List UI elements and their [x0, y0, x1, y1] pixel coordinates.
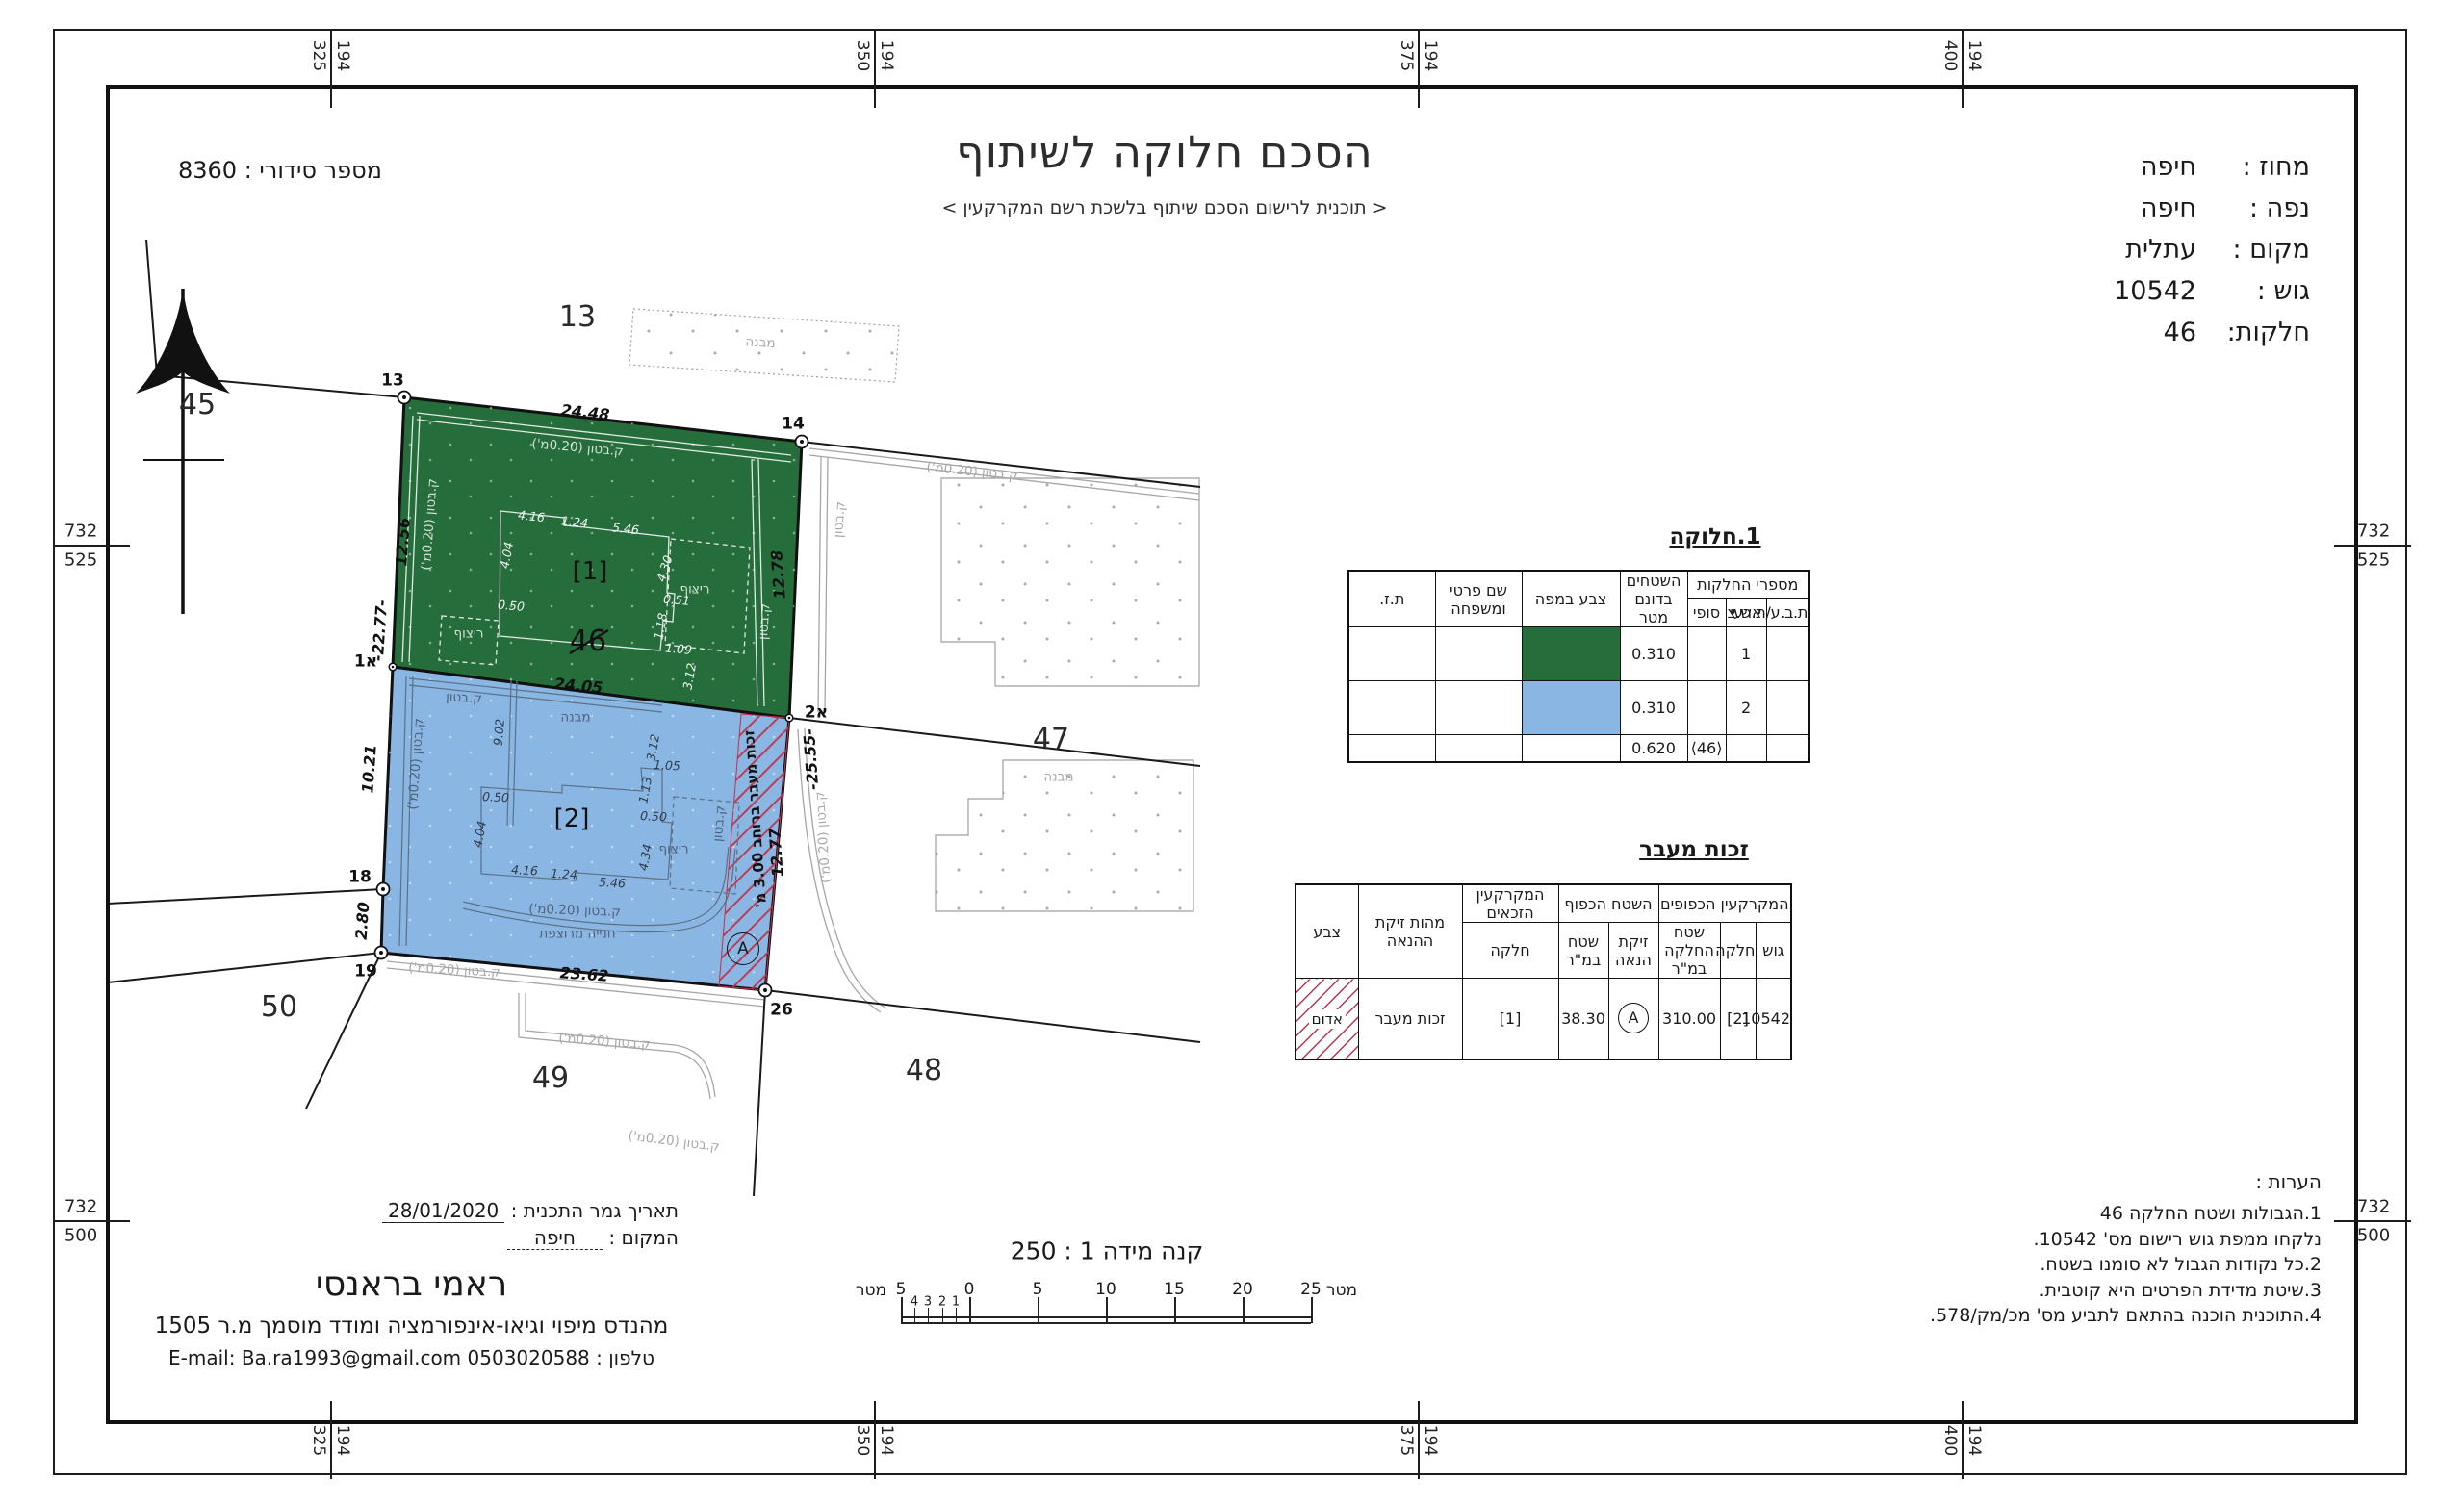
notes-section: הערות : 1.הגבולות ושטח החלקה 46נלקחו ממפ…: [1908, 1170, 2322, 1329]
grid-tick-top: [874, 29, 876, 108]
map-text-label: [2]: [554, 806, 590, 831]
grid-tick-bottom: [874, 1401, 876, 1479]
grid-label: 732: [64, 1197, 97, 1217]
map-text-label: מבנה: [560, 711, 590, 725]
map-text-label: ק.בטון: [833, 501, 848, 539]
dimension-24.05: 24.05: [553, 676, 603, 696]
note-line-5: 4.התוכנית הוכנה בהתאם לתביע מס' מכ/מק/57…: [1908, 1303, 2322, 1329]
map-text-label: [1]: [573, 559, 608, 584]
division-heading: 1.חלוקה: [1669, 524, 1760, 549]
grid-label: 732: [2357, 1197, 2390, 1217]
map-text-label: 1.05: [654, 759, 680, 773]
map-text-label: 0.50: [498, 599, 526, 614]
map-text-label: 46: [570, 627, 606, 656]
table-row: 1 0.310: [1348, 627, 1809, 681]
boundary-point-label-2א: 2א: [805, 705, 828, 722]
map-text-label: 5.46: [599, 877, 626, 890]
dimension-23.62: 23.62: [559, 965, 609, 983]
notes-list: 1.הגבולות ושטח החלקה 46נלקחו ממפת גוש רי…: [1908, 1201, 2322, 1329]
grid-label: 375: [1397, 1425, 1416, 1456]
scale-unit-right: מטר: [1326, 1281, 1357, 1300]
cell-temp-2: 2: [1726, 681, 1766, 735]
map-text-label: ק.בטון (0.20מ'): [528, 904, 621, 920]
grid-label: 350: [853, 1425, 872, 1456]
scale-minor-tick: [928, 1308, 929, 1323]
grid-label: 194: [1421, 1425, 1440, 1456]
grid-tick-right: [2334, 1220, 2411, 1222]
grid-tick-bottom: [330, 1401, 332, 1479]
grid-tick-left: [53, 545, 130, 547]
plan-completion-date: תאריך גמר התכנית : 28/01/2020: [144, 1199, 679, 1222]
scale-major-tick: [1243, 1297, 1245, 1323]
col-areas: השטחיםבדונם מטר: [1620, 571, 1687, 627]
scale-minor-tick: [942, 1308, 943, 1323]
map-text-label: ריצוף: [454, 627, 484, 641]
map-text-label: ריצוף: [659, 843, 689, 856]
scale-minor-label: 2: [938, 1295, 946, 1310]
grid-tick-bottom: [1418, 1401, 1420, 1479]
location-row-2: מקום :עתלית: [2114, 235, 2310, 276]
scale-major-label: 15: [1164, 1280, 1185, 1299]
dimension-2.80: 2.80: [354, 902, 372, 941]
scale-minor-tick: [914, 1308, 915, 1323]
dimension-12.56: 12.56: [394, 517, 412, 567]
note-line-3: 2.כל נקודות הגבול לא סומנו בשטח.: [1908, 1252, 2322, 1278]
division-table: מספרי החלקות השטחיםבדונם מטר צבע במפה שם…: [1347, 570, 1809, 763]
map-text-label: 0.50: [640, 810, 667, 824]
cell-nature: זכות מעבר: [1358, 979, 1462, 1059]
scale-minor-label: 1: [952, 1295, 960, 1310]
map-text-label: ק.בטון: [446, 691, 482, 705]
scale-major-label: 5: [1033, 1280, 1043, 1299]
map-text-label: 1.24: [551, 868, 577, 881]
note-line-1: 1.הגבולות ושטח החלקה 46: [1908, 1201, 2322, 1227]
map-text-label: 1.09: [665, 643, 693, 657]
page-title: הסכם חלוקה לשיתוף: [956, 126, 1373, 178]
grid-label: 375: [1397, 40, 1416, 71]
grid-label: 194: [333, 40, 352, 71]
col-easement-nature: מהות זיקת ההנאה: [1358, 884, 1462, 979]
scale-minor-label: 4: [911, 1295, 918, 1310]
col-helka-area: שטח החלקהבמ"ר: [1658, 923, 1720, 979]
cell-area-2: 0.310: [1620, 681, 1687, 735]
col-group-dominant: המקרקעין הזכאים: [1462, 884, 1558, 923]
col-group-servient: המקרקעין הכפופים: [1658, 884, 1791, 923]
grid-label: 732: [2357, 522, 2390, 542]
plan-place: המקום : חיפה: [144, 1226, 679, 1249]
plan-sheet: 3251943501943751944001943251943501943751…: [0, 0, 2464, 1505]
parcel-number-49: 49: [532, 1064, 569, 1093]
surveyor-name: ראמי בראנסי: [144, 1264, 679, 1304]
grid-label: 194: [1421, 40, 1440, 71]
note-line-2: נלקחו ממפת גוש רישום מס' 10542.: [1908, 1227, 2322, 1253]
location-block: מחוז :חיפהנפה :חיפהמקום :עתליתגוש :10542…: [2114, 152, 2310, 359]
map-text-label: ק.בטון: [712, 805, 729, 843]
scale-major-tick: [1106, 1297, 1108, 1323]
page-subtitle: < תוכנית לרישום הסכם שיתוף בלשכת רשם המק…: [941, 197, 1387, 218]
cell-easement-mark: A: [1608, 979, 1658, 1059]
surveyor-contact: E-mail: Ba.ra1993@gmail.com טלפון : 0503…: [144, 1346, 679, 1369]
scale-major-label: 10: [1095, 1280, 1116, 1299]
col-easement: זיקתהנאה: [1608, 923, 1658, 979]
map-text-label: 5.46: [612, 522, 640, 536]
cell-total-area: 0.620: [1620, 735, 1687, 762]
map-text-label: 1.24: [561, 515, 589, 529]
note-line-4: 3.שיטת מדידת הפרטים היא קוטבית.: [1908, 1278, 2322, 1304]
dimension--25.55-: -25.55-: [802, 728, 821, 791]
serial-number: מספר סידורי : 8360: [178, 157, 382, 184]
cell-gush: 10542: [1756, 979, 1791, 1059]
grid-label: 325: [309, 40, 328, 71]
col-full-name: שם פרטי ומשפחה: [1435, 571, 1522, 627]
col-gush: גוש: [1756, 923, 1791, 979]
dimension-10.21: 10.21: [360, 744, 378, 794]
grid-label: 194: [877, 40, 896, 71]
scale-major-tick: [901, 1297, 903, 1323]
scale-major-tick: [1311, 1297, 1313, 1323]
scale-major-tick: [969, 1297, 971, 1323]
parcel-number-13: 13: [559, 303, 596, 332]
grid-label: 500: [64, 1226, 97, 1246]
grid-label: 325: [309, 1425, 328, 1456]
location-row-3: גוש :10542: [2114, 276, 2310, 318]
location-row-4: חלקות:46: [2114, 318, 2310, 359]
dimension-12.77: 12.77: [767, 828, 785, 878]
map-text-label: 4.16: [511, 864, 538, 878]
map-text-label: ריצוף: [680, 583, 710, 597]
notes-heading: הערות :: [1908, 1170, 2322, 1193]
grid-label: 400: [1940, 40, 1960, 71]
table-row: 10542 [2] 310.00 A 38.30 [1] זכות מעבר א…: [1296, 979, 1791, 1059]
scale-minor-label: 3: [924, 1295, 932, 1310]
scale-unit-left: מטר: [856, 1281, 886, 1300]
dimension--22.77-: -22.77-: [371, 599, 390, 662]
map-text-label: מבנה: [745, 336, 776, 350]
parcel-number-48: 48: [906, 1057, 942, 1085]
scale-major-label: 20: [1232, 1280, 1253, 1299]
scale-title: קנה מידה 1 : 250: [1011, 1237, 1203, 1265]
cell-helka-area: 310.00: [1658, 979, 1720, 1059]
grid-tick-right: [2334, 545, 2411, 547]
map-text-label: חנייה מרוצפת: [539, 928, 615, 941]
boundary-point-label-18: 18: [348, 870, 372, 886]
scale-major-label: 25: [1300, 1280, 1322, 1299]
grid-label: 525: [2357, 550, 2390, 571]
cell-area-1: 0.310: [1620, 627, 1687, 681]
col-dominant-helka: חלקה: [1462, 923, 1558, 979]
dimension-12.78: 12.78: [769, 549, 787, 599]
grid-label: 194: [333, 1425, 352, 1456]
col-map-color: צבע במפה: [1522, 571, 1620, 627]
grid-label: 350: [853, 40, 872, 71]
grid-tick-top: [1418, 29, 1420, 108]
map-text-label: 0.50: [482, 791, 509, 804]
easement-table: המקרקעין הכפופים השטח הכפוף המקרקעין הזכ…: [1295, 883, 1792, 1060]
location-row-0: מחוז :חיפה: [2114, 152, 2310, 193]
cell-color-red-hatch: אדום: [1296, 979, 1358, 1059]
grid-label: 194: [1964, 1425, 1984, 1456]
cell-total-final: ⟨46⟩: [1687, 735, 1726, 762]
grid-tick-left: [53, 1220, 130, 1222]
map-text-label: ק.בטון: [757, 603, 773, 641]
boundary-point-label-19: 19: [354, 964, 377, 981]
grid-label: 732: [64, 522, 97, 542]
grid-label: 194: [877, 1425, 896, 1456]
color-swatch-blue: [1522, 681, 1620, 735]
col-final: סופי: [1687, 598, 1726, 626]
scale-major-label: 0: [964, 1280, 975, 1299]
surveyor-credentials: מהנדס מיפוי וגיאו-אינפורמציה ומודד מוסמך…: [144, 1314, 679, 1339]
parcel-number-47: 47: [1033, 726, 1069, 754]
col-id-number: ת.ז.: [1348, 571, 1435, 627]
boundary-point-label-14: 14: [782, 417, 805, 433]
grid-label: 194: [1964, 40, 1984, 71]
location-row-1: נפה :חיפה: [2114, 193, 2310, 235]
cell-dominant-helka: [1]: [1462, 979, 1558, 1059]
scale-minor-tick: [956, 1308, 957, 1323]
parcel-number-50: 50: [261, 993, 297, 1022]
cell-temp-1: 1: [1726, 627, 1766, 681]
col-group-parcel-numbers: מספרי החלקות: [1687, 571, 1809, 598]
grid-label: 400: [1940, 1425, 1960, 1456]
cell-subject-area: 38.30: [1558, 979, 1608, 1059]
col-subject-area: שטחבמ"ר: [1558, 923, 1608, 979]
boundary-point-label-26: 26: [770, 1003, 793, 1019]
scale-major-tick: [1038, 1297, 1039, 1323]
table-total-row: ⟨46⟩ 0.620: [1348, 735, 1809, 762]
col-temporary: ארעי: [1726, 598, 1766, 626]
scale-major-label: 5: [896, 1280, 907, 1299]
parcel-number-45: 45: [179, 391, 216, 420]
col-color: צבע: [1296, 884, 1358, 979]
col-tba: ת.ב.ע/ת.ש.צ: [1766, 598, 1809, 626]
surveyor-block: תאריך גמר התכנית : 28/01/2020 המקום : חי…: [144, 1199, 679, 1369]
col-helka: חלקה: [1720, 923, 1756, 979]
map-text-label: 4.16: [518, 509, 546, 523]
boundary-point-label-13: 13: [381, 373, 404, 390]
grid-tick-top: [1962, 29, 1963, 108]
map-text-label: 9.02: [493, 719, 507, 747]
col-group-subject-area: השטח הכפוף: [1558, 884, 1658, 923]
color-swatch-green: [1522, 627, 1620, 681]
grid-label: 525: [64, 550, 97, 571]
easement-mark-a: A: [727, 932, 759, 965]
scale-major-tick: [1174, 1297, 1176, 1323]
grid-tick-bottom: [1962, 1401, 1963, 1479]
easement-heading: זכות מעבר: [1639, 837, 1749, 862]
grid-tick-top: [330, 29, 332, 108]
map-text-label: מבנה: [1043, 771, 1073, 784]
table-row: 2 0.310: [1348, 681, 1809, 735]
grid-label: 500: [2357, 1226, 2390, 1246]
